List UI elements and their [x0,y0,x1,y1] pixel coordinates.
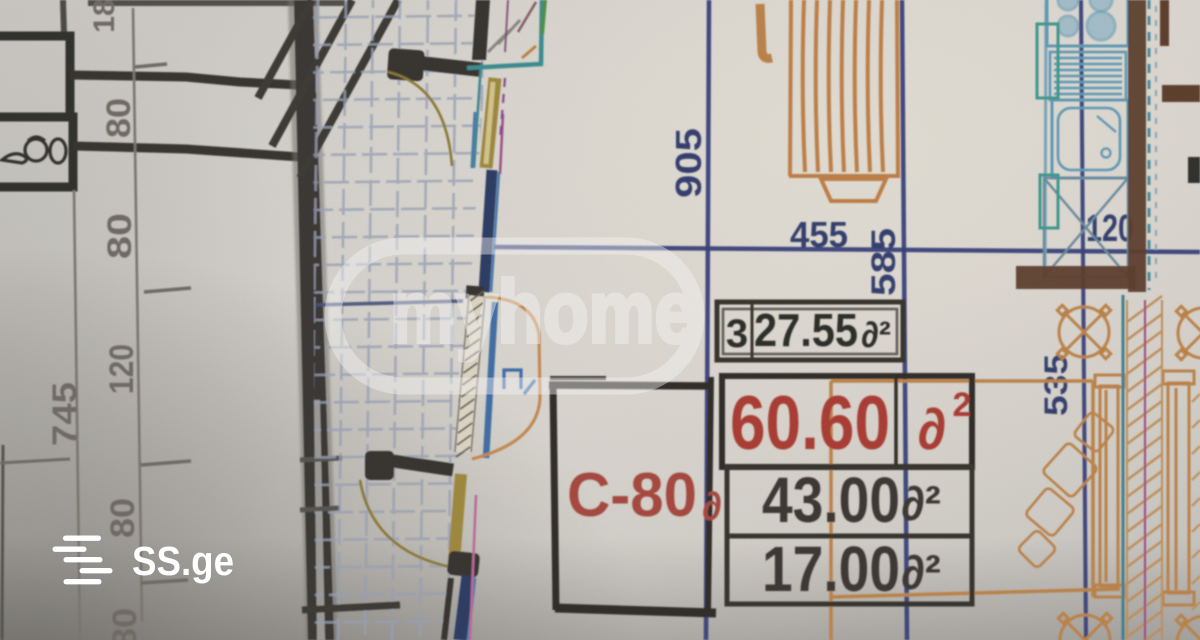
svg-text:SS.ge: SS.ge [132,538,234,584]
